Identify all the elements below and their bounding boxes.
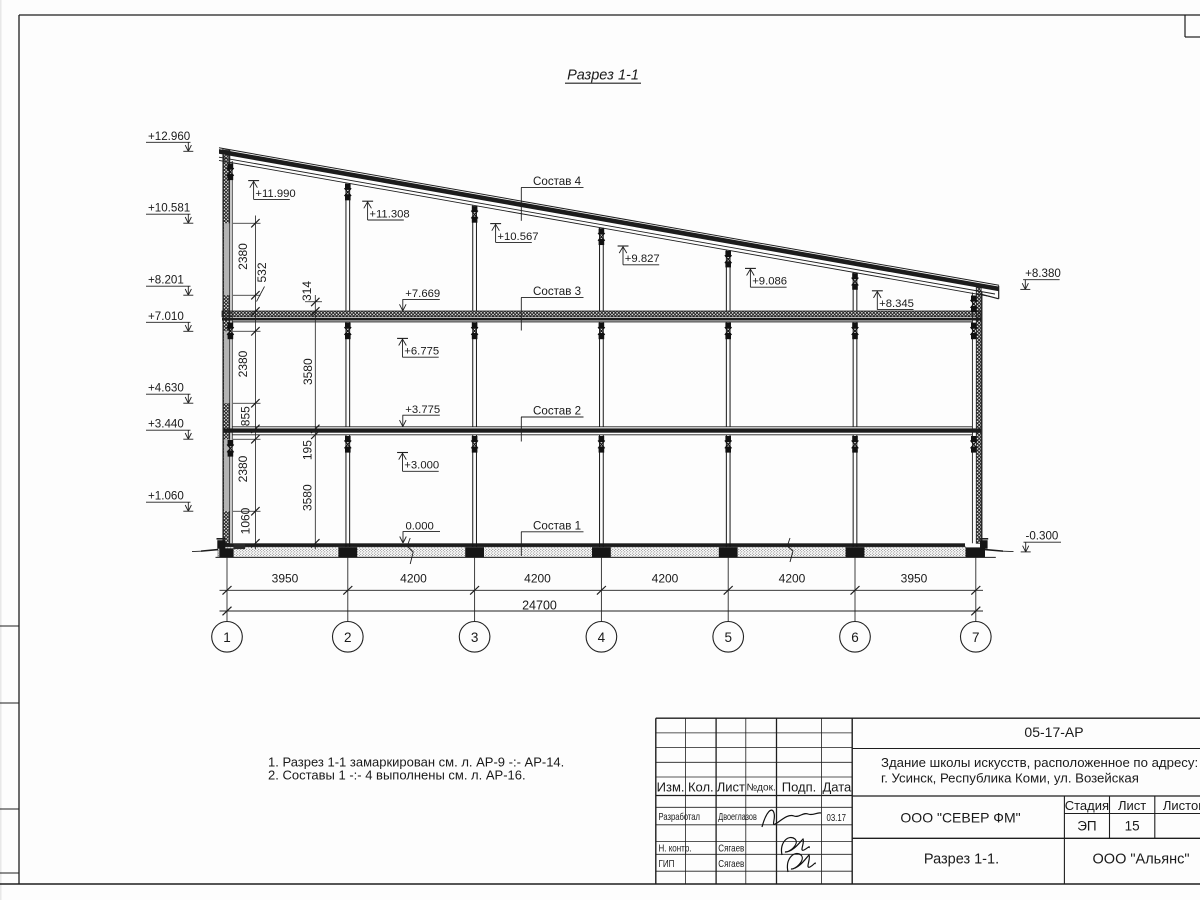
svg-text:Стадия: Стадия: [1065, 798, 1109, 813]
svg-text:+10.581: +10.581: [148, 202, 190, 215]
svg-text:2. Составы 1 -:- 4 выполнены с: 2. Составы 1 -:- 4 выполнены см. л. АР-1…: [268, 768, 526, 783]
svg-text:6: 6: [851, 630, 859, 645]
svg-text:855: 855: [239, 406, 253, 426]
svg-text:Н. контр.: Н. контр.: [659, 843, 692, 854]
svg-text:+3.000: +3.000: [404, 460, 439, 472]
svg-text:15: 15: [1125, 818, 1140, 833]
svg-text:ООО "Альянс": ООО "Альянс": [1093, 851, 1190, 867]
svg-text:7: 7: [972, 630, 980, 645]
svg-text:+9.827: +9.827: [625, 253, 660, 265]
svg-text:Состав 3: Состав 3: [533, 285, 581, 298]
svg-text:ООО "СЕВЕР ФМ": ООО "СЕВЕР ФМ": [900, 809, 1020, 825]
svg-text:5: 5: [724, 630, 732, 645]
svg-text:314: 314: [300, 281, 314, 301]
svg-text:г. Усинск, Республика Коми, ул: г. Усинск, Республика Коми, ул. Возейска…: [881, 770, 1139, 785]
svg-text:№док.: №док.: [746, 783, 775, 794]
svg-text:Разрез 1-1.: Разрез 1-1.: [924, 851, 999, 867]
svg-text:+3.440: +3.440: [148, 418, 184, 431]
svg-text:Подп.: Подп.: [782, 779, 817, 794]
svg-text:+7.669: +7.669: [405, 288, 440, 300]
svg-text:0.000: 0.000: [406, 520, 434, 532]
svg-text:2380: 2380: [236, 350, 250, 377]
svg-text:+11.990: +11.990: [255, 188, 295, 200]
svg-text:ГИП: ГИП: [659, 859, 675, 870]
svg-text:Листов: Листов: [1163, 798, 1200, 813]
svg-text:Дата: Дата: [823, 779, 853, 794]
svg-text:4200: 4200: [524, 571, 551, 585]
svg-text:4200: 4200: [652, 571, 679, 585]
svg-text:Состав 1: Состав 1: [533, 519, 581, 532]
svg-text:2380: 2380: [236, 455, 250, 482]
svg-text:ЭП: ЭП: [1077, 818, 1096, 833]
svg-text:Сягаев: Сягаев: [718, 859, 744, 870]
svg-text:1060: 1060: [239, 507, 253, 534]
svg-text:3580: 3580: [301, 358, 315, 385]
svg-text:Кол.: Кол.: [688, 779, 714, 794]
svg-text:Здание школы искусств, располо: Здание школы искусств, расположенное по …: [881, 755, 1198, 770]
svg-text:+6.775: +6.775: [404, 346, 439, 358]
svg-text:3580: 3580: [301, 484, 315, 511]
svg-text:3: 3: [471, 630, 479, 645]
svg-text:Состав 2: Состав 2: [533, 405, 581, 418]
svg-text:Разработал: Разработал: [659, 811, 701, 823]
svg-text:24700: 24700: [522, 598, 557, 612]
svg-text:05-17-АР: 05-17-АР: [1024, 724, 1083, 740]
svg-text:2: 2: [344, 630, 352, 645]
svg-text:+1.060: +1.060: [148, 490, 184, 503]
svg-text:03.17: 03.17: [827, 813, 847, 824]
svg-text:+8.345: +8.345: [879, 298, 914, 310]
svg-text:+8.201: +8.201: [148, 274, 184, 287]
svg-text:1: 1: [223, 630, 231, 645]
svg-text:195: 195: [301, 440, 315, 460]
svg-text:532: 532: [255, 262, 269, 282]
svg-text:-0.300: -0.300: [1026, 530, 1059, 543]
svg-text:Изм.: Изм.: [657, 779, 685, 794]
svg-text:+3.775: +3.775: [405, 404, 440, 416]
svg-text:2380: 2380: [236, 243, 250, 270]
svg-text:+4.630: +4.630: [148, 382, 184, 395]
svg-text:Двоеглазов: Двоеглазов: [718, 812, 757, 823]
svg-text:4200: 4200: [400, 571, 427, 585]
svg-text:4200: 4200: [779, 571, 806, 585]
svg-text:Состав 4: Состав 4: [533, 175, 582, 188]
svg-text:+11.308: +11.308: [369, 208, 409, 220]
svg-text:3950: 3950: [901, 571, 928, 585]
svg-text:+7.010: +7.010: [148, 310, 184, 323]
svg-text:Лист: Лист: [717, 779, 745, 794]
svg-text:4: 4: [598, 630, 606, 645]
svg-text:+9.086: +9.086: [752, 276, 787, 288]
svg-text:+8.380: +8.380: [1025, 267, 1061, 280]
svg-text:+10.567: +10.567: [497, 231, 538, 243]
svg-text:+12.960: +12.960: [148, 130, 190, 143]
svg-text:3950: 3950: [272, 571, 299, 585]
svg-text:Лист: Лист: [1118, 798, 1146, 813]
svg-text:Сягаев: Сягаев: [718, 843, 744, 854]
svg-text:Разрез 1-1: Разрез 1-1: [567, 68, 639, 84]
